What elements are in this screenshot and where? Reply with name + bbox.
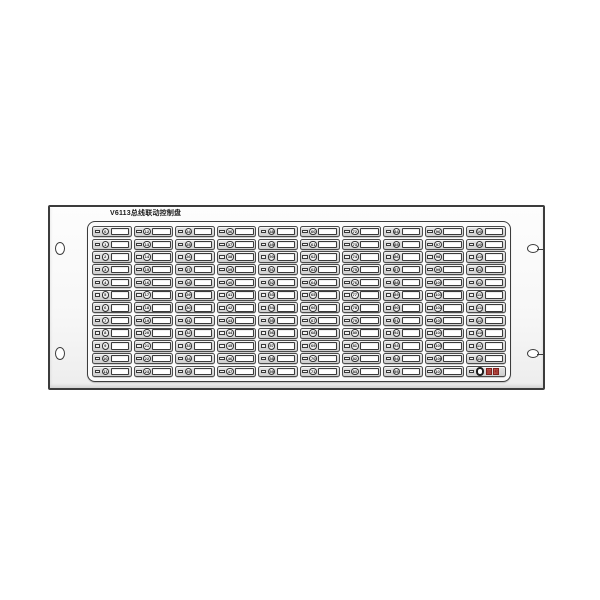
linkage-button-cell-8[interactable]: 8 [92,328,132,339]
zone-button-74[interactable]: 74 [351,253,359,261]
linkage-button-cell-30[interactable]: 30 [175,302,215,313]
zone-button-90[interactable]: 90 [393,304,401,312]
linkage-button-cell-70[interactable]: 70 [300,353,340,364]
linkage-button-cell-82[interactable]: 82 [342,353,382,364]
zone-button-55[interactable]: 55 [268,317,276,325]
linkage-button-cell-116[interactable]: 116 [466,328,506,339]
linkage-button-cell-94[interactable]: 94 [383,353,423,364]
zone-button-81[interactable]: 81 [351,342,359,350]
linkage-button-cell-93[interactable]: 93 [383,340,423,351]
linkage-button-cell-10[interactable]: 10 [92,353,132,364]
linkage-button-cell-9[interactable]: 9 [92,340,132,351]
zone-button-77[interactable]: 77 [351,291,359,299]
linkage-button-cell-69[interactable]: 69 [300,340,340,351]
button-column-4: 363738394041424344454647 [217,226,257,377]
linkage-button-cell-104[interactable]: 104 [425,328,465,339]
zone-button-31[interactable]: 31 [185,317,193,325]
zone-button-45[interactable]: 45 [226,342,234,350]
led-indicator [219,293,225,297]
zone-button-114[interactable]: 114 [476,304,484,312]
zone-button-17[interactable]: 17 [143,291,151,299]
zone-button-49[interactable]: 49 [268,241,276,249]
linkage-button-cell-83[interactable]: 83 [342,366,382,377]
linkage-button-cell-72[interactable]: 72 [342,226,382,237]
linkage-button-cell-1[interactable]: 1 [92,239,132,250]
label-window [194,368,213,376]
label-window [485,304,504,312]
linkage-button-cell-84[interactable]: 84 [383,226,423,237]
zone-button-19[interactable]: 19 [143,317,151,325]
linkage-button-cell-85[interactable]: 85 [383,239,423,250]
linkage-button-cell-89[interactable]: 89 [383,290,423,301]
linkage-button-cell-95[interactable]: 95 [383,366,423,377]
linkage-button-cell-92[interactable]: 92 [383,328,423,339]
zone-button-70[interactable]: 70 [309,355,317,363]
zone-button-7[interactable]: 7 [102,317,110,325]
linkage-button-cell-3[interactable]: 3 [92,264,132,275]
zone-button-6[interactable]: 6 [102,304,110,312]
led-indicator [427,357,433,361]
linkage-button-cell-99[interactable]: 99 [425,264,465,275]
zone-button-110[interactable]: 110 [476,253,484,261]
linkage-button-cell-58[interactable]: 58 [258,353,298,364]
zone-button-14[interactable]: 14 [143,253,151,261]
zone-button-42[interactable]: 42 [226,304,234,312]
zone-button-56[interactable]: 56 [268,329,276,337]
label-window [360,228,379,236]
zone-button-37[interactable]: 37 [226,241,234,249]
zone-button-8[interactable]: 8 [102,329,110,337]
zone-button-113[interactable]: 113 [476,291,484,299]
linkage-button-cell-40[interactable]: 40 [217,277,257,288]
label-window [235,342,254,350]
linkage-button-cell-21[interactable]: 21 [134,340,174,351]
label-window [277,317,296,325]
linkage-button-cell-64[interactable]: 64 [300,277,340,288]
linkage-button-cell-32[interactable]: 32 [175,328,215,339]
label-window [360,368,379,376]
linkage-button-cell-56[interactable]: 56 [258,328,298,339]
linkage-button-cell-34[interactable]: 34 [175,353,215,364]
zone-button-60[interactable]: 60 [309,228,317,236]
zone-button-27[interactable]: 27 [185,266,193,274]
linkage-button-cell-14[interactable]: 14 [134,251,174,262]
linkage-button-cell-115[interactable]: 115 [466,315,506,326]
zone-button-63[interactable]: 63 [309,266,317,274]
zone-button-79[interactable]: 79 [351,317,359,325]
linkage-button-cell-59[interactable]: 59 [258,366,298,377]
linkage-button-cell-77[interactable]: 77 [342,290,382,301]
zone-button-36[interactable]: 36 [226,228,234,236]
zone-button-95[interactable]: 95 [393,368,401,376]
zone-button-68[interactable]: 68 [309,329,317,337]
zone-button-33[interactable]: 33 [185,342,193,350]
zone-button-0[interactable]: 0 [102,228,110,236]
linkage-button-cell-61[interactable]: 61 [300,239,340,250]
label-window [235,266,254,274]
linkage-button-cell-44[interactable]: 44 [217,328,257,339]
led-indicator [178,344,184,348]
zone-button-44[interactable]: 44 [226,329,234,337]
led-indicator [344,255,350,259]
linkage-button-cell-24[interactable]: 24 [175,226,215,237]
linkage-button-cell-17[interactable]: 17 [134,290,174,301]
linkage-button-cell-43[interactable]: 43 [217,315,257,326]
led-indicator [136,293,142,297]
linkage-button-cell-13[interactable]: 13 [134,239,174,250]
linkage-button-cell-75[interactable]: 75 [342,264,382,275]
zone-button-92[interactable]: 92 [393,329,401,337]
zone-button-91[interactable]: 91 [393,317,401,325]
label-window [152,228,171,236]
zone-button-25[interactable]: 25 [185,241,193,249]
zone-button-66[interactable]: 66 [309,304,317,312]
linkage-button-cell-37[interactable]: 37 [217,239,257,250]
zone-button-21[interactable]: 21 [143,342,151,350]
zone-button-53[interactable]: 53 [268,291,276,299]
linkage-button-cell-79[interactable]: 79 [342,315,382,326]
label-window [360,329,379,337]
zone-button-39[interactable]: 39 [226,266,234,274]
zone-button-97[interactable]: 97 [434,241,442,249]
zone-button-35[interactable]: 35 [185,368,193,376]
zone-button-82[interactable]: 82 [351,355,359,363]
zone-button-109[interactable]: 109 [476,241,484,249]
zone-button-3[interactable]: 3 [102,266,110,274]
led-indicator [95,255,101,259]
led-indicator [386,293,392,297]
zone-button-2[interactable]: 2 [102,253,110,261]
linkage-button-cell-55[interactable]: 55 [258,315,298,326]
zone-button-20[interactable]: 20 [143,329,151,337]
zone-button-115[interactable]: 115 [476,317,484,325]
zone-button-75[interactable]: 75 [351,266,359,274]
label-window [318,368,337,376]
linkage-button-cell-62[interactable]: 62 [300,251,340,262]
linkage-button-cell-25[interactable]: 25 [175,239,215,250]
zone-button-86[interactable]: 86 [393,253,401,261]
zone-button-78[interactable]: 78 [351,304,359,312]
linkage-button-cell-20[interactable]: 20 [134,328,174,339]
linkage-button-cell-107[interactable]: 107 [425,366,465,377]
linkage-button-cell-88[interactable]: 88 [383,277,423,288]
linkage-button-cell-41[interactable]: 41 [217,290,257,301]
label-window [277,291,296,299]
led-indicator [219,255,225,259]
linkage-button-cell-97[interactable]: 97 [425,239,465,250]
label-window [402,329,421,337]
zone-button-62[interactable]: 62 [309,253,317,261]
zone-button-48[interactable]: 48 [268,228,276,236]
label-window [443,355,462,363]
linkage-button-cell-48[interactable]: 48 [258,226,298,237]
linkage-button-cell-18[interactable]: 18 [134,302,174,313]
self-test-button[interactable] [476,367,485,376]
label-window [111,266,130,274]
label-window [194,304,213,312]
linkage-button-cell-78[interactable]: 78 [342,302,382,313]
linkage-button-cell-86[interactable]: 86 [383,251,423,262]
linkage-button-cell-65[interactable]: 65 [300,290,340,301]
zone-button-58[interactable]: 58 [268,355,276,363]
linkage-button-cell-110[interactable]: 110 [466,251,506,262]
zone-button-52[interactable]: 52 [268,279,276,287]
linkage-button-cell-87[interactable]: 87 [383,264,423,275]
linkage-button-cell-101[interactable]: 101 [425,290,465,301]
linkage-button-cell-57[interactable]: 57 [258,340,298,351]
zone-button-34[interactable]: 34 [185,355,193,363]
zone-button-12[interactable]: 12 [143,228,151,236]
led-indicator [302,331,308,335]
label-window [443,291,462,299]
linkage-button-cell-47[interactable]: 47 [217,366,257,377]
zone-button-65[interactable]: 65 [309,291,317,299]
label-window [318,329,337,337]
zone-button-71[interactable]: 71 [309,368,317,376]
zone-button-28[interactable]: 28 [185,279,193,287]
linkage-button-cell-31[interactable]: 31 [175,315,215,326]
zone-button-41[interactable]: 41 [226,291,234,299]
zone-button-30[interactable]: 30 [185,304,193,312]
zone-button-15[interactable]: 15 [143,266,151,274]
zone-button-64[interactable]: 64 [309,279,317,287]
zone-button-107[interactable]: 107 [434,368,442,376]
linkage-button-cell-12[interactable]: 12 [134,226,174,237]
linkage-button-cell-66[interactable]: 66 [300,302,340,313]
linkage-button-cell-0[interactable]: 0 [92,226,132,237]
linkage-button-cell-19[interactable]: 19 [134,315,174,326]
zone-button-54[interactable]: 54 [268,304,276,312]
zone-button-111[interactable]: 111 [476,266,484,274]
zone-button-50[interactable]: 50 [268,253,276,261]
linkage-button-cell-27[interactable]: 27 [175,264,215,275]
zone-button-24[interactable]: 24 [185,228,193,236]
zone-button-116[interactable]: 116 [476,329,484,337]
zone-button-40[interactable]: 40 [226,279,234,287]
led-indicator [136,243,142,247]
button-column-6: 606162636465666768697071 [300,226,340,377]
linkage-button-cell-35[interactable]: 35 [175,366,215,377]
led-indicator [386,306,392,310]
zone-button-18[interactable]: 18 [143,304,151,312]
linkage-button-cell-81[interactable]: 81 [342,340,382,351]
zone-button-103[interactable]: 103 [434,317,442,325]
zone-button-11[interactable]: 11 [102,368,110,376]
label-window [235,279,254,287]
linkage-button-cell-74[interactable]: 74 [342,251,382,262]
led-indicator [427,293,433,297]
zone-button-59[interactable]: 59 [268,368,276,376]
linkage-button-cell-80[interactable]: 80 [342,328,382,339]
linkage-button-cell-39[interactable]: 39 [217,264,257,275]
led-indicator [386,319,392,323]
linkage-button-cell-114[interactable]: 114 [466,302,506,313]
linkage-button-cell-49[interactable]: 49 [258,239,298,250]
zone-button-117[interactable]: 117 [476,342,484,350]
zone-button-99[interactable]: 99 [434,266,442,274]
linkage-button-cell-23[interactable]: 23 [134,366,174,377]
led-indicator [95,331,101,335]
linkage-button-cell-4[interactable]: 4 [92,277,132,288]
zone-button-9[interactable]: 9 [102,342,110,350]
linkage-button-cell-11[interactable]: 11 [92,366,132,377]
linkage-button-cell-29[interactable]: 29 [175,290,215,301]
zone-button-101[interactable]: 101 [434,291,442,299]
led-indicator [386,281,392,285]
label-window [152,304,171,312]
zone-button-67[interactable]: 67 [309,317,317,325]
zone-button-22[interactable]: 22 [143,355,151,363]
linkage-button-cell-16[interactable]: 16 [134,277,174,288]
linkage-button-cell-106[interactable]: 106 [425,353,465,364]
led-indicator [344,344,350,348]
linkage-button-cell-52[interactable]: 52 [258,277,298,288]
zone-button-69[interactable]: 69 [309,342,317,350]
label-window [277,228,296,236]
linkage-button-cell-112[interactable]: 112 [466,277,506,288]
linkage-button-cell-36[interactable]: 36 [217,226,257,237]
zone-button-13[interactable]: 13 [143,241,151,249]
linkage-button-cell-54[interactable]: 54 [258,302,298,313]
zone-button-85[interactable]: 85 [393,241,401,249]
zone-button-61[interactable]: 61 [309,241,317,249]
led-indicator [178,293,184,297]
linkage-button-cell-38[interactable]: 38 [217,251,257,262]
label-window [402,279,421,287]
linkage-button-cell-71[interactable]: 71 [300,366,340,377]
linkage-button-cell-105[interactable]: 105 [425,340,465,351]
led-indicator [386,357,392,361]
zone-button-87[interactable]: 87 [393,266,401,274]
zone-button-73[interactable]: 73 [351,241,359,249]
zone-button-32[interactable]: 32 [185,329,193,337]
zone-button-102[interactable]: 102 [434,304,442,312]
zone-button-100[interactable]: 100 [434,279,442,287]
zone-button-104[interactable]: 104 [434,329,442,337]
linkage-button-cell-7[interactable]: 7 [92,315,132,326]
linkage-button-cell-22[interactable]: 22 [134,353,174,364]
zone-button-96[interactable]: 96 [434,228,442,236]
zone-button-38[interactable]: 38 [226,253,234,261]
zone-button-51[interactable]: 51 [268,266,276,274]
zone-button-94[interactable]: 94 [393,355,401,363]
linkage-button-cell-42[interactable]: 42 [217,302,257,313]
zone-button-72[interactable]: 72 [351,228,359,236]
zone-button-83[interactable]: 83 [351,368,359,376]
linkage-button-cell-67[interactable]: 67 [300,315,340,326]
zone-button-76[interactable]: 76 [351,279,359,287]
self-test-cell[interactable]: 自检 [466,366,506,377]
zone-button-118[interactable]: 118 [476,355,484,363]
linkage-button-cell-90[interactable]: 90 [383,302,423,313]
label-window [485,329,504,337]
zone-button-43[interactable]: 43 [226,317,234,325]
linkage-button-cell-15[interactable]: 15 [134,264,174,275]
led-indicator [261,370,267,374]
linkage-control-panel: V6113总线联动控制盘 012345678910111213141516171… [48,205,545,390]
linkage-button-cell-111[interactable]: 111 [466,264,506,275]
screw-slot-left-bottom [55,347,65,360]
linkage-button-cell-60[interactable]: 60 [300,226,340,237]
zone-button-112[interactable]: 112 [476,279,484,287]
linkage-button-cell-45[interactable]: 45 [217,340,257,351]
zone-button-26[interactable]: 26 [185,253,193,261]
label-window [235,241,254,249]
label-window [152,368,171,376]
linkage-button-cell-51[interactable]: 51 [258,264,298,275]
led-indicator [427,319,433,323]
linkage-button-cell-73[interactable]: 73 [342,239,382,250]
linkage-button-cell-117[interactable]: 117 [466,340,506,351]
linkage-button-cell-68[interactable]: 68 [300,328,340,339]
linkage-button-cell-46[interactable]: 46 [217,353,257,364]
zone-button-16[interactable]: 16 [143,279,151,287]
linkage-button-cell-6[interactable]: 6 [92,302,132,313]
zone-button-105[interactable]: 105 [434,342,442,350]
zone-button-47[interactable]: 47 [226,368,234,376]
zone-button-29[interactable]: 29 [185,291,193,299]
linkage-button-cell-96[interactable]: 96 [425,226,465,237]
linkage-button-cell-63[interactable]: 63 [300,264,340,275]
label-window [318,291,337,299]
linkage-button-cell-2[interactable]: 2 [92,251,132,262]
zone-button-88[interactable]: 88 [393,279,401,287]
linkage-button-cell-100[interactable]: 100 [425,277,465,288]
linkage-button-cell-5[interactable]: 5 [92,290,132,301]
linkage-button-cell-26[interactable]: 26 [175,251,215,262]
zone-button-57[interactable]: 57 [268,342,276,350]
label-window [194,317,213,325]
zone-button-10[interactable]: 10 [102,355,110,363]
zone-button-106[interactable]: 106 [434,355,442,363]
zone-button-93[interactable]: 93 [393,342,401,350]
zone-button-23[interactable]: 23 [143,368,151,376]
label-window [402,342,421,350]
zone-button-46[interactable]: 46 [226,355,234,363]
led-indicator [219,331,225,335]
linkage-button-cell-98[interactable]: 98 [425,251,465,262]
linkage-button-cell-53[interactable]: 53 [258,290,298,301]
led-indicator [261,255,267,259]
linkage-button-cell-103[interactable]: 103 [425,315,465,326]
zone-button-1[interactable]: 1 [102,241,110,249]
zone-button-80[interactable]: 80 [351,329,359,337]
led-indicator [427,230,433,234]
zone-button-4[interactable]: 4 [102,279,110,287]
zone-button-89[interactable]: 89 [393,291,401,299]
label-window [318,317,337,325]
linkage-button-cell-76[interactable]: 76 [342,277,382,288]
zone-button-98[interactable]: 98 [434,253,442,261]
linkage-button-cell-118[interactable]: 118 [466,353,506,364]
linkage-button-cell-28[interactable]: 28 [175,277,215,288]
label-window [485,342,504,350]
led-indicator [261,281,267,285]
zone-button-5[interactable]: 5 [102,291,110,299]
linkage-button-cell-108[interactable]: 108 [466,226,506,237]
linkage-button-cell-113[interactable]: 113 [466,290,506,301]
linkage-button-cell-109[interactable]: 109 [466,239,506,250]
linkage-button-cell-102[interactable]: 102 [425,302,465,313]
linkage-button-cell-91[interactable]: 91 [383,315,423,326]
zone-button-84[interactable]: 84 [393,228,401,236]
linkage-button-cell-50[interactable]: 50 [258,251,298,262]
led-indicator [344,268,350,272]
linkage-button-cell-33[interactable]: 33 [175,340,215,351]
led-indicator [136,319,142,323]
zone-button-108[interactable]: 108 [476,228,484,236]
led-indicator [178,268,184,272]
